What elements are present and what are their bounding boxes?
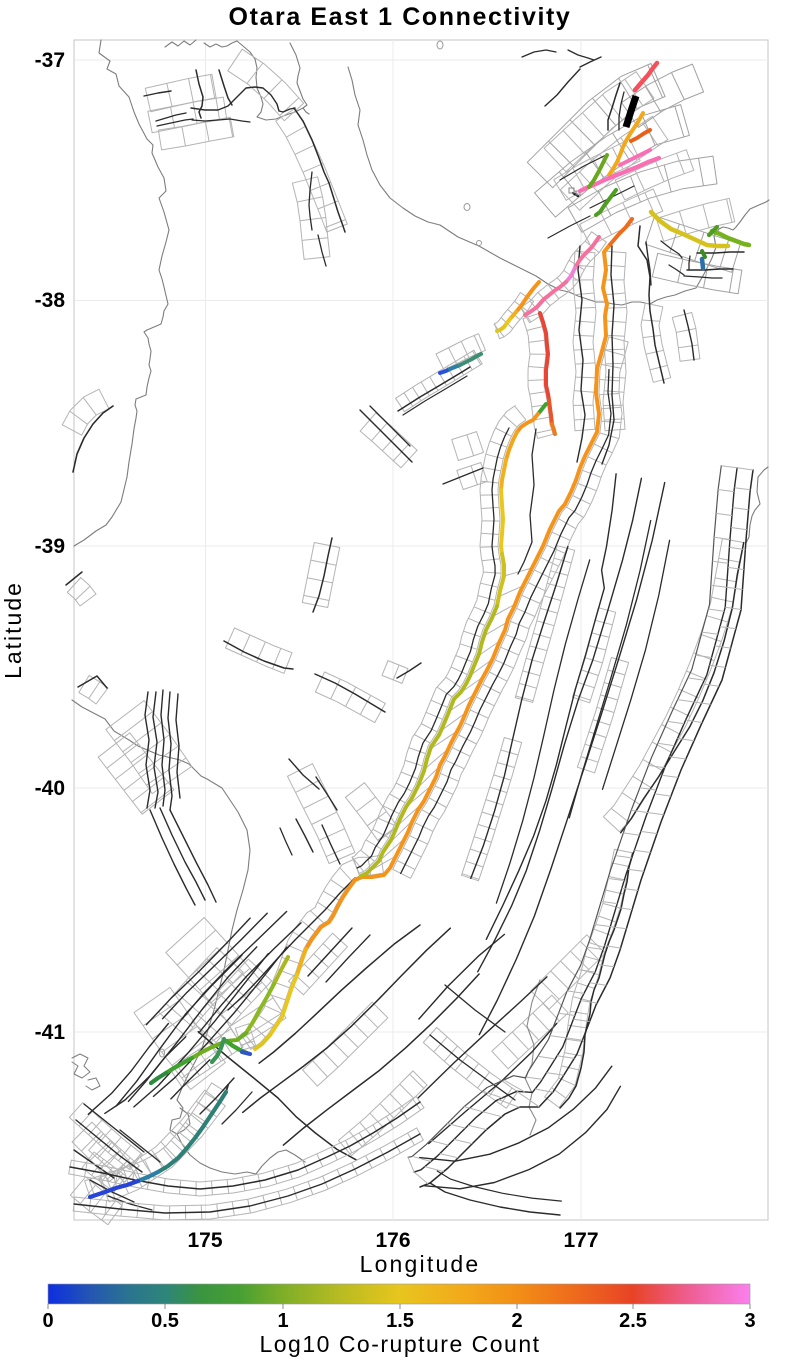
svg-text:Otara East 1 Connectivity: Otara East 1 Connectivity bbox=[229, 3, 572, 31]
svg-text:Latitude: Latitude bbox=[0, 581, 26, 679]
svg-text:-39: -39 bbox=[35, 535, 65, 558]
svg-text:-41: -41 bbox=[35, 1021, 66, 1044]
svg-text:176: 176 bbox=[375, 1229, 410, 1252]
svg-text:0: 0 bbox=[42, 1310, 53, 1332]
svg-text:-40: -40 bbox=[35, 777, 65, 800]
svg-text:Log10 Co-rupture Count: Log10 Co-rupture Count bbox=[259, 1331, 540, 1357]
svg-text:0.5: 0.5 bbox=[151, 1310, 179, 1332]
svg-text:1.5: 1.5 bbox=[386, 1310, 414, 1332]
svg-text:3: 3 bbox=[744, 1310, 755, 1332]
svg-text:-37: -37 bbox=[35, 49, 65, 72]
svg-text:1: 1 bbox=[277, 1310, 288, 1332]
svg-text:2.5: 2.5 bbox=[619, 1310, 647, 1332]
svg-text:2: 2 bbox=[511, 1310, 522, 1332]
svg-text:-38: -38 bbox=[35, 289, 66, 312]
svg-text:Longitude: Longitude bbox=[360, 1251, 481, 1277]
svg-text:177: 177 bbox=[563, 1229, 598, 1252]
svg-text:175: 175 bbox=[187, 1229, 222, 1252]
